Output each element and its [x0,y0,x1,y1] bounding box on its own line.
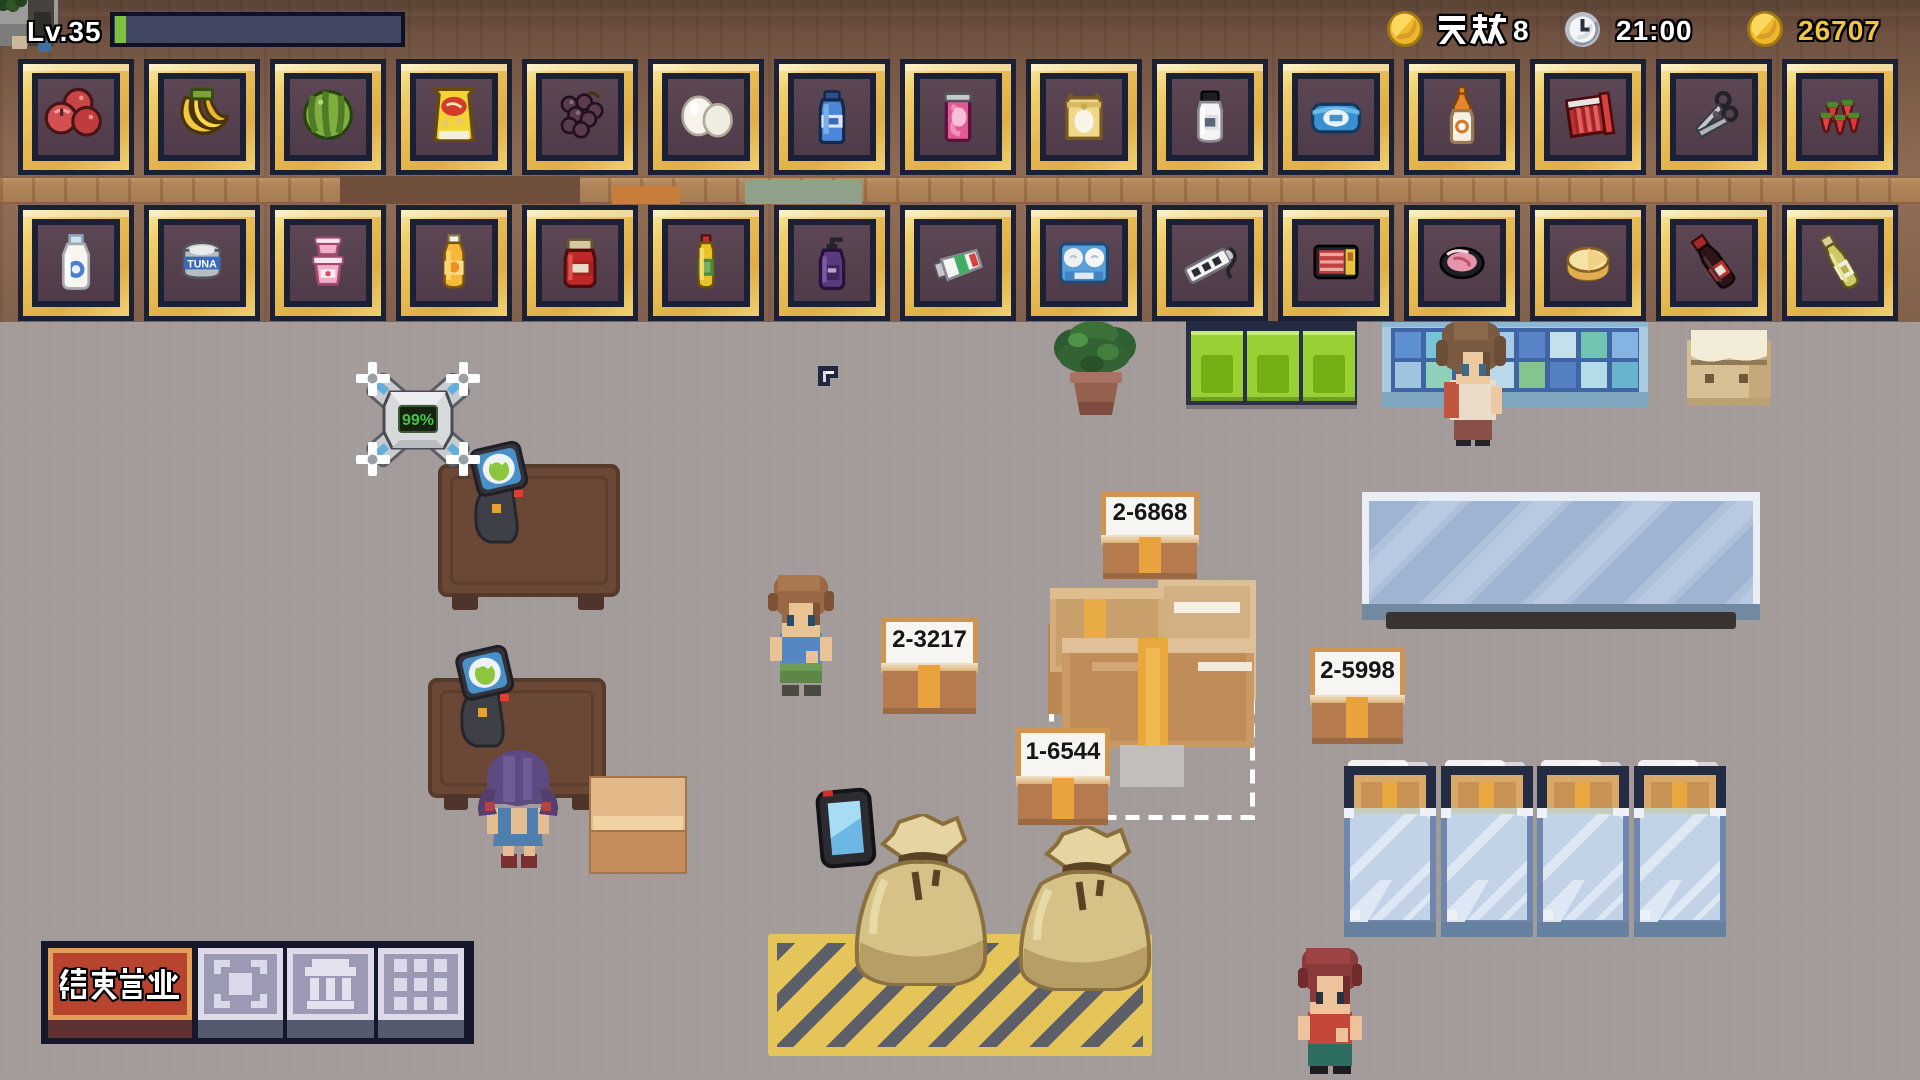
svg-text:TUNA: TUNA [187,258,217,270]
svg-text:99%: 99% [402,412,434,429]
